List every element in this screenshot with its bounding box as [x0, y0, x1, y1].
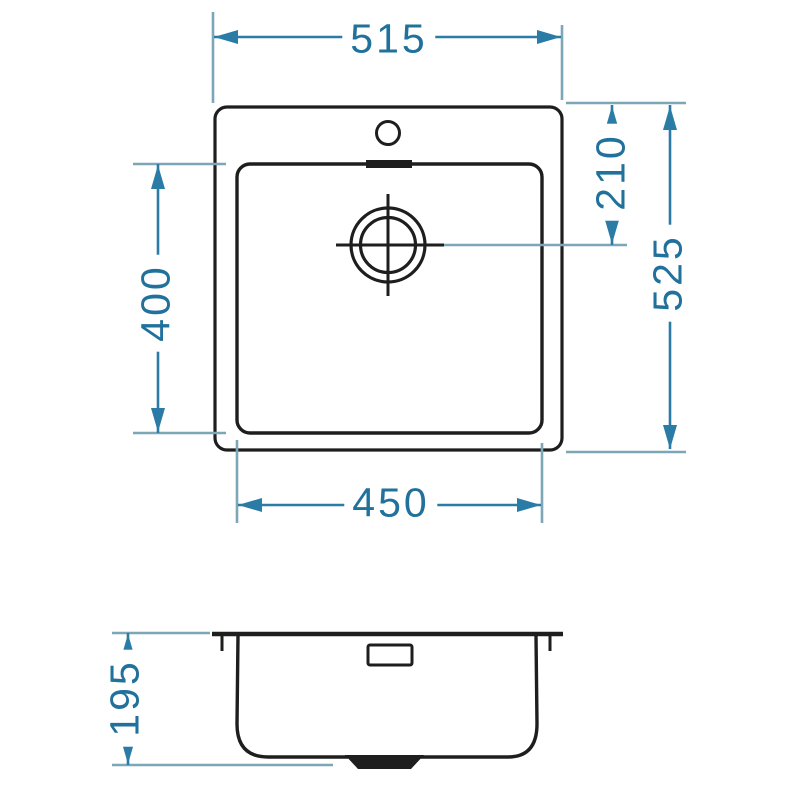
arrow-400-down-icon [151, 408, 165, 432]
arrow-515-right-icon [537, 30, 561, 44]
arrow-515-left-icon [214, 30, 238, 44]
overflow-slot-side-view [368, 645, 412, 665]
arrow-525-up-icon [663, 106, 677, 130]
drain-boss [345, 755, 424, 769]
dim-label-bowl-height: 195 [103, 649, 148, 746]
arrow-450-left-icon [238, 498, 262, 512]
sink-dimension-drawing: 515 210 525 400 450 195 [0, 0, 800, 800]
arrow-210-down-icon [605, 220, 619, 244]
arrow-400-up-icon [151, 165, 165, 189]
faucet-hole [377, 122, 400, 145]
dim-label-bowl-width: 450 [344, 481, 437, 526]
bowl-section-outline [237, 636, 537, 757]
top-view [215, 107, 562, 450]
dim-label-drain-center-from-top: 210 [589, 123, 634, 220]
overflow-slot-top-view [366, 160, 412, 168]
arrow-450-right-icon [517, 498, 541, 512]
side-view [212, 634, 563, 769]
dim-label-bowl-front-to-back: 400 [134, 254, 179, 351]
arrow-525-down-icon [663, 425, 677, 449]
dim-label-overall-width: 515 [342, 17, 435, 62]
dim-label-overall-depth: 525 [646, 224, 691, 321]
